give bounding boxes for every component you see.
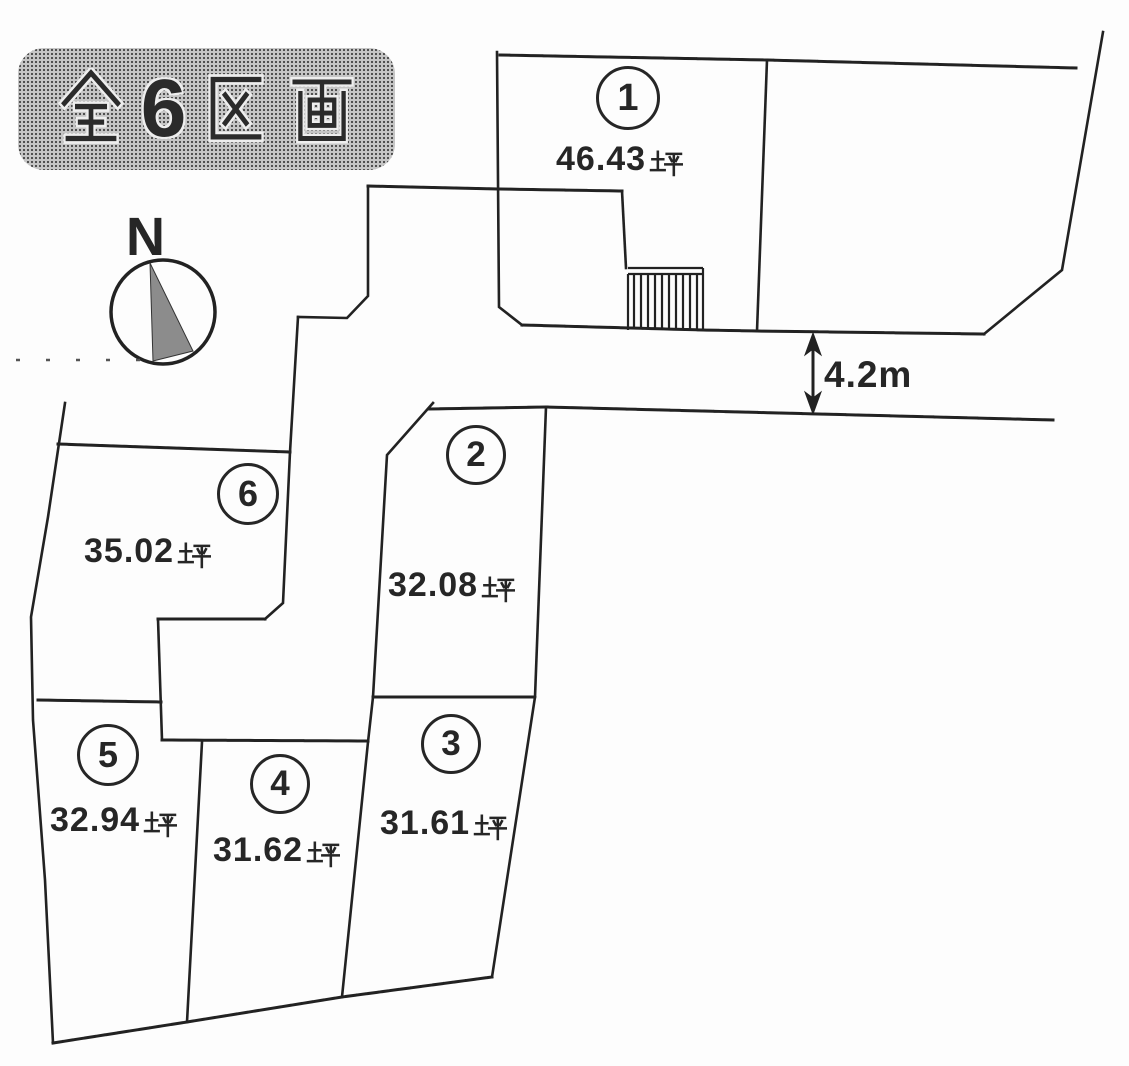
lot4-number: 4 [270, 764, 289, 804]
lot2-number-badge: 2② [446, 425, 506, 485]
lot3-number: 3 [441, 724, 460, 764]
lot4-number-badge: 4④ [250, 754, 310, 814]
lot6-area-label: 35.02 35.02坪 [84, 532, 211, 571]
west-boundary-line [31, 403, 65, 1043]
tsubo-unit-glyph [306, 836, 340, 870]
road-west-wall [265, 317, 298, 619]
tsubo-unit-glyph [473, 809, 507, 843]
east-parcel-edge [984, 32, 1103, 334]
road-bottom-edge [429, 407, 1053, 420]
kanji-ku-glyph [200, 68, 272, 150]
road-stub-west-wall [298, 186, 368, 318]
stair-landing-bar [628, 268, 703, 274]
kanji-ga-glyph [286, 68, 358, 150]
stair-notch-left [622, 191, 626, 268]
lot-plan-diagram: 6 全6区画 N 4.2m 1① 2② 3③ 4④ 5⑤ 6⑥ 46.43 [0, 0, 1129, 1066]
lot5-number-badge: 5⑤ [77, 724, 139, 786]
road-width-label: 4.2m [824, 354, 912, 396]
lot1-number-badge: 1① [596, 66, 660, 130]
lot1-area-label: 46.43 46.43坪 [556, 140, 683, 179]
tsubo-unit-glyph [481, 571, 515, 605]
lot1-number: 1 [617, 77, 638, 120]
lot2-area-label: 32.08 32.08坪 [388, 566, 515, 605]
compass-needle [150, 263, 193, 361]
lot3-area-label: 31.61 31.61坪 [380, 804, 507, 843]
lot3-number-badge: 3③ [421, 714, 481, 774]
north-boundary-line [500, 55, 1076, 68]
lot5-area-label: 32.94 32.94坪 [50, 801, 177, 840]
lot2-east-edge [535, 407, 546, 697]
lot1-parcel-divider [757, 60, 767, 331]
north-label: N [126, 206, 166, 268]
lot2-number: 2 [466, 435, 485, 475]
plan-title: 6 全6区画 [18, 48, 395, 170]
lot6-north-edge [58, 444, 290, 452]
road-top-edge [522, 325, 984, 334]
kanji-zen-glyph [55, 68, 127, 150]
lot4-area-label: 31.62 31.62坪 [213, 831, 340, 870]
tsubo-unit-glyph [649, 145, 683, 179]
south-boundary-line [53, 977, 492, 1043]
compass [16, 260, 215, 364]
lot6-number: 6 [238, 473, 258, 515]
lot1-south-edge [368, 186, 622, 191]
lot5-number: 5 [98, 734, 118, 776]
tsubo-unit-glyph [177, 537, 211, 571]
stair-steps [628, 274, 697, 330]
road-southwest-wall [158, 619, 162, 740]
lot6-number-badge: 6⑥ [217, 463, 279, 525]
lot4-lot5-divider [187, 742, 202, 1022]
road-width-arrow [805, 333, 821, 414]
lot5-north-edge [38, 700, 161, 702]
lot2-lot3-west-chain [342, 403, 433, 997]
title-digit: 6 [141, 68, 187, 150]
tsubo-unit-glyph [143, 806, 177, 840]
stairs-hatch [628, 268, 703, 331]
lot4-north-edge [162, 740, 368, 741]
